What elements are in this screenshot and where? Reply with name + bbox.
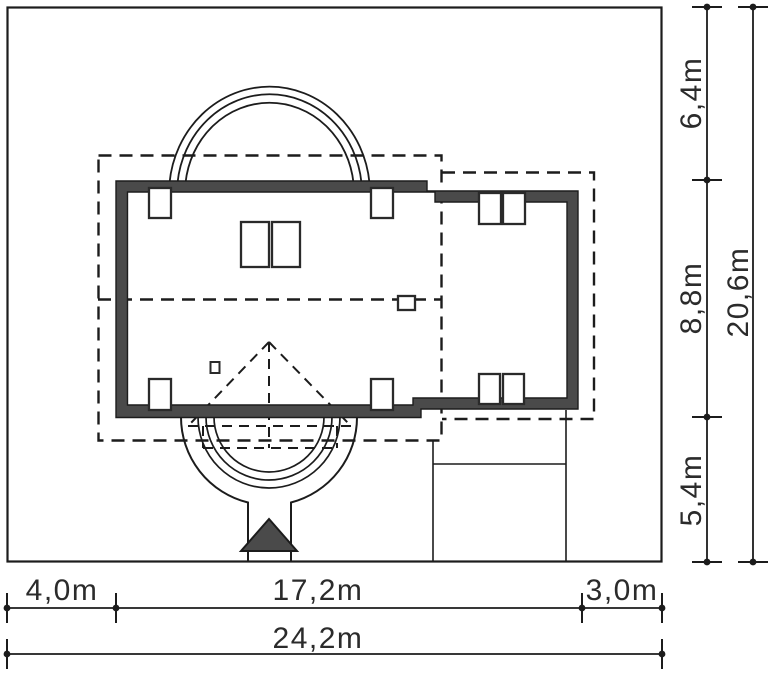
bay-arc-middle xyxy=(178,94,362,183)
bay-arc-inner xyxy=(186,103,354,183)
dim-label-right-middle: 8,8m xyxy=(675,262,708,335)
roof-window-main-se xyxy=(371,379,393,410)
chimneys xyxy=(211,222,416,373)
small-vent xyxy=(211,362,220,373)
porch-roof-outline xyxy=(188,342,351,448)
dim-label-bottom-right: 3,0m xyxy=(586,574,659,607)
site-plan-canvas: 4,0m 17,2m 3,0m 24,2m 6,4m 8,8m 5,4m 20,… xyxy=(0,0,770,674)
driveway xyxy=(433,410,566,561)
roof-window-main-nw xyxy=(149,188,171,218)
floor-plan-page: 4,0m 17,2m 3,0m 24,2m 6,4m 8,8m 5,4m 20,… xyxy=(0,0,770,674)
roof-window-annex-sw xyxy=(479,374,500,404)
roof-window-annex-se xyxy=(503,374,524,404)
dim-label-bottom-middle: 17,2m xyxy=(273,574,364,607)
dim-label-bottom-left: 4,0m xyxy=(26,574,99,607)
ridge-vent xyxy=(398,296,415,310)
dim-label-right-bottom: 5,4m xyxy=(675,454,708,527)
roof-window-annex-nw xyxy=(479,193,501,224)
dim-label-right-total: 20,6m xyxy=(722,247,755,338)
dimension-labels: 4,0m 17,2m 3,0m 24,2m 6,4m 8,8m 5,4m 20,… xyxy=(26,57,755,655)
bay-arc-outer xyxy=(170,87,370,183)
dim-label-bottom-total: 24,2m xyxy=(273,622,364,655)
north-bay-arcs xyxy=(170,87,370,183)
chimney-block-right xyxy=(272,222,300,267)
roof-window-annex-ne xyxy=(503,193,525,224)
dim-label-right-top: 6,4m xyxy=(675,57,708,130)
roof-window-main-ne xyxy=(371,188,393,218)
entrance-arrow xyxy=(241,519,297,551)
chimney-block-left xyxy=(241,222,269,267)
roof-window-main-sw xyxy=(149,379,171,410)
plot-boundary xyxy=(8,8,662,562)
